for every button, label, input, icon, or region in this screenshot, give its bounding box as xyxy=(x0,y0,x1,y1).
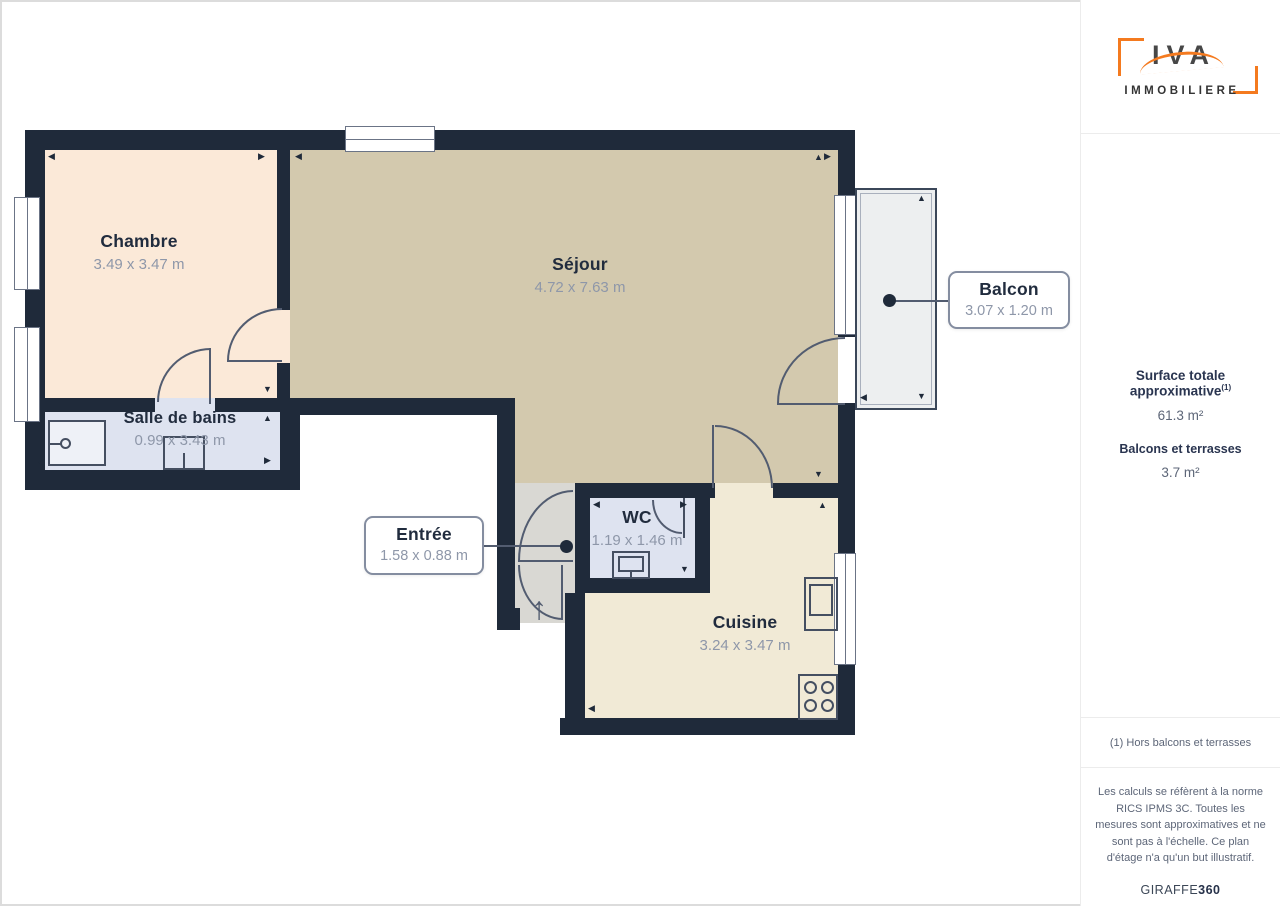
room-label-cuisine: Cuisine 3.24 x 3.47 m xyxy=(700,612,791,654)
floor-plan: ↑ ◀ ▶ ◀ ▶ ▲ ▼ ▼ ▲ ◀ ▶ ◀ ▶ ▼ ▲ ◀ xyxy=(0,0,1080,906)
wall-wc-bottom xyxy=(575,578,710,593)
room-title: Entrée xyxy=(366,524,482,545)
wall-sejour-bottom-left xyxy=(290,398,515,415)
floor-plan-page: ↑ ◀ ▶ ◀ ▶ ▲ ▼ ▼ ▲ ◀ ▶ ◀ ▶ ▼ ▲ ◀ xyxy=(0,0,1280,906)
room-label-chambre: Chambre 3.49 x 3.47 m xyxy=(94,231,185,273)
stove-burner-icon xyxy=(821,681,834,694)
room-label-wc: WC 1.19 x 1.46 m xyxy=(592,507,683,549)
wall-wc-right xyxy=(695,483,710,593)
surface-total-title: Surface totale approximative(1) xyxy=(1089,368,1272,399)
room-dims: 0.99 x 3.43 m xyxy=(124,432,237,449)
wall-sejour-cuisine-a xyxy=(575,483,715,498)
window-chambre-left-1 xyxy=(14,197,40,290)
surface-total-title-text: Surface totale approximative xyxy=(1130,368,1225,399)
toilet-bowl-icon xyxy=(618,556,644,572)
measure-arrow-icon: ▼ xyxy=(814,470,823,479)
sidebar-divider xyxy=(1081,133,1280,134)
measure-arrow-icon: ▲ xyxy=(917,194,926,203)
room-label-sejour: Séjour 4.72 x 7.63 m xyxy=(535,254,626,296)
measure-arrow-icon: ▲ xyxy=(814,153,823,162)
balcony-area xyxy=(855,188,937,410)
room-label-salle-de-bains: Salle de bains 0.99 x 3.43 m xyxy=(124,409,237,449)
room-dims: 1.19 x 1.46 m xyxy=(592,532,683,549)
balcony-surface-title: Balcons et terrasses xyxy=(1089,442,1272,456)
window-sejour-right xyxy=(834,195,856,335)
wall-bath-bottom xyxy=(25,470,300,490)
room-title: Balcon xyxy=(950,279,1068,300)
room-title: Séjour xyxy=(535,254,626,275)
legal-note-text: Les calculs se réfèrent à la norme RICS … xyxy=(1094,784,1267,867)
surface-total-value: 61.3 m² xyxy=(1089,408,1272,423)
surface-footnote-marker: (1) xyxy=(1221,383,1231,392)
measure-arrow-icon: ▼ xyxy=(263,385,272,394)
wall-cuisine-left xyxy=(565,593,585,735)
agency-logo: IVA IMMOBILIERE xyxy=(1081,22,1280,122)
surface-summary: Surface totale approximative(1) 61.3 m² … xyxy=(1089,368,1272,480)
wall-wc-left xyxy=(575,483,590,593)
balcon-leader-line xyxy=(895,300,950,302)
room-dims: 3.24 x 3.47 m xyxy=(700,637,791,654)
sidebar: IVA IMMOBILIERE Surface totale approxima… xyxy=(1080,0,1280,906)
footnote: (1) Hors balcons et terrasses xyxy=(1081,717,1280,768)
door-leaf-balcony xyxy=(777,403,845,405)
measure-arrow-icon: ◀ xyxy=(38,458,45,467)
window-chambre-left-2 xyxy=(14,327,40,422)
measure-arrow-icon: ▼ xyxy=(680,565,689,574)
measure-arrow-icon: ▶ xyxy=(258,152,265,161)
room-dims: 3.49 x 3.47 m xyxy=(94,256,185,273)
balcon-dot xyxy=(883,294,896,307)
room-dims: 4.72 x 7.63 m xyxy=(535,279,626,296)
room-title: Cuisine xyxy=(700,612,791,633)
room-dims: 1.58 x 0.88 m xyxy=(366,548,482,564)
measure-arrow-icon: ▼ xyxy=(917,392,926,401)
giraffe360-bold: 360 xyxy=(1198,883,1220,897)
room-title: Salle de bains xyxy=(124,409,237,428)
wall-entrance-stub xyxy=(497,608,520,630)
callout-balcon: Balcon 3.07 x 1.20 m xyxy=(948,271,1070,329)
measure-arrow-icon: ◀ xyxy=(295,152,302,161)
wall-left xyxy=(25,130,45,490)
balcony-surface-value: 3.7 m² xyxy=(1089,465,1272,480)
legal-note-block: Les calculs se réfèrent à la norme RICS … xyxy=(1081,767,1280,899)
stove-icon xyxy=(798,674,838,720)
measure-arrow-icon: ▲ xyxy=(818,501,827,510)
measure-arrow-icon: ◀ xyxy=(588,704,595,713)
balcony-inner-line xyxy=(860,193,932,405)
entree-dot xyxy=(560,540,573,553)
bath-sink-detail-icon xyxy=(183,453,185,470)
giraffe360-regular: GIRAFFE xyxy=(1140,883,1198,897)
room-title: WC xyxy=(592,507,683,528)
entree-leader-line xyxy=(483,545,563,547)
callout-entree: Entrée 1.58 x 0.88 m xyxy=(364,516,484,575)
measure-arrow-icon: ◀ xyxy=(860,393,867,402)
measure-arrow-icon: ▶ xyxy=(264,456,271,465)
room-floor-sejour-extension xyxy=(515,398,838,483)
door-leaf-sejour-cuisine xyxy=(712,425,714,488)
stove-burner-icon xyxy=(821,699,834,712)
kitchen-sink-basin-icon xyxy=(809,584,833,616)
window-sejour-top xyxy=(345,126,435,152)
giraffe360-brand: GIRAFFE360 xyxy=(1094,881,1267,900)
wall-entree-left xyxy=(497,415,515,630)
toilet-detail-icon xyxy=(630,572,632,579)
stove-burner-icon xyxy=(804,681,817,694)
measure-arrow-icon: ▶ xyxy=(824,152,831,161)
logo-subtitle: IMMOBILIERE xyxy=(1081,85,1280,97)
room-dims: 3.07 x 1.20 m xyxy=(950,303,1068,319)
entrance-arrow-icon: ↑ xyxy=(531,592,547,624)
stove-burner-icon xyxy=(804,699,817,712)
wall-cuisine-bottom xyxy=(560,718,855,735)
bathtub-tap-icon xyxy=(48,443,62,445)
wall-top xyxy=(25,130,855,150)
measure-arrow-icon: ◀ xyxy=(48,152,55,161)
measure-arrow-icon: ▲ xyxy=(263,414,272,423)
wall-chambre-sejour-upper xyxy=(277,130,290,310)
wall-chambre-sejour-lower xyxy=(277,363,290,398)
room-title: Chambre xyxy=(94,231,185,252)
